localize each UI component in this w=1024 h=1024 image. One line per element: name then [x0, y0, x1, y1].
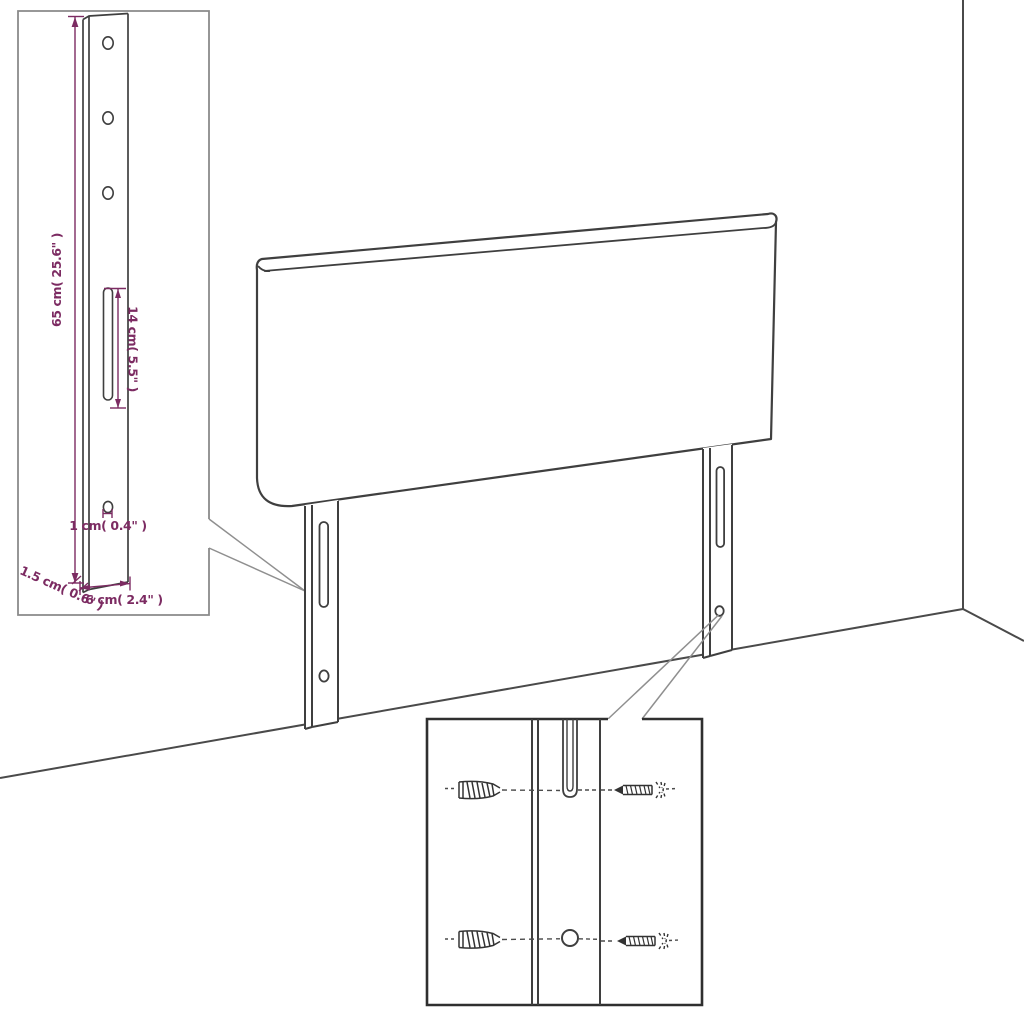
callout-line [608, 615, 719, 719]
floor-line-right [963, 609, 1024, 641]
inset-leg-slot [104, 288, 113, 400]
inset-leg-hole-4 [103, 501, 112, 512]
left-leg-hole [319, 670, 328, 681]
dim-label-leg-height: 65 cm( 25.6" ) [49, 233, 64, 327]
dim-label-slot-length: 14 cm( 5.5" ) [126, 306, 141, 392]
dashed-line [579, 939, 599, 940]
headboard-panel [257, 213, 777, 506]
diagram-stage: 65 cm( 25.6" ) 14 cm( 5.5" ) 1 cm( 0.4" … [0, 0, 1024, 1024]
right-leg-hole [715, 606, 723, 616]
dim-arrow-up [72, 17, 79, 27]
headboard-outline [257, 213, 777, 506]
inset-strip-hole [562, 930, 578, 946]
dim-label-leg-width: 6 cm( 2.4" ) [85, 592, 162, 607]
dimension-leg-height [68, 17, 84, 584]
dim-label-hole-size: 1 cm( 0.4" ) [69, 518, 146, 533]
hardware-inset [427, 719, 702, 1005]
right-leg-slot [717, 467, 725, 547]
inset-leg-hole-2 [103, 112, 113, 124]
headboard-left-leg [305, 500, 338, 729]
assembly-diagram: 65 cm( 25.6" ) 14 cm( 5.5" ) 1 cm( 0.4" … [0, 0, 1024, 1024]
hardware-inset-fill [427, 719, 702, 1005]
inset-leg-hole-1 [103, 37, 113, 49]
leg-detail-callout-lines [209, 519, 305, 591]
leg-detail-inset: 65 cm( 25.6" ) 14 cm( 5.5" ) 1 cm( 0.4" … [18, 11, 209, 615]
inset-leg-hole-3 [103, 187, 113, 199]
left-leg-slot [320, 522, 329, 607]
callout-line [642, 616, 722, 719]
